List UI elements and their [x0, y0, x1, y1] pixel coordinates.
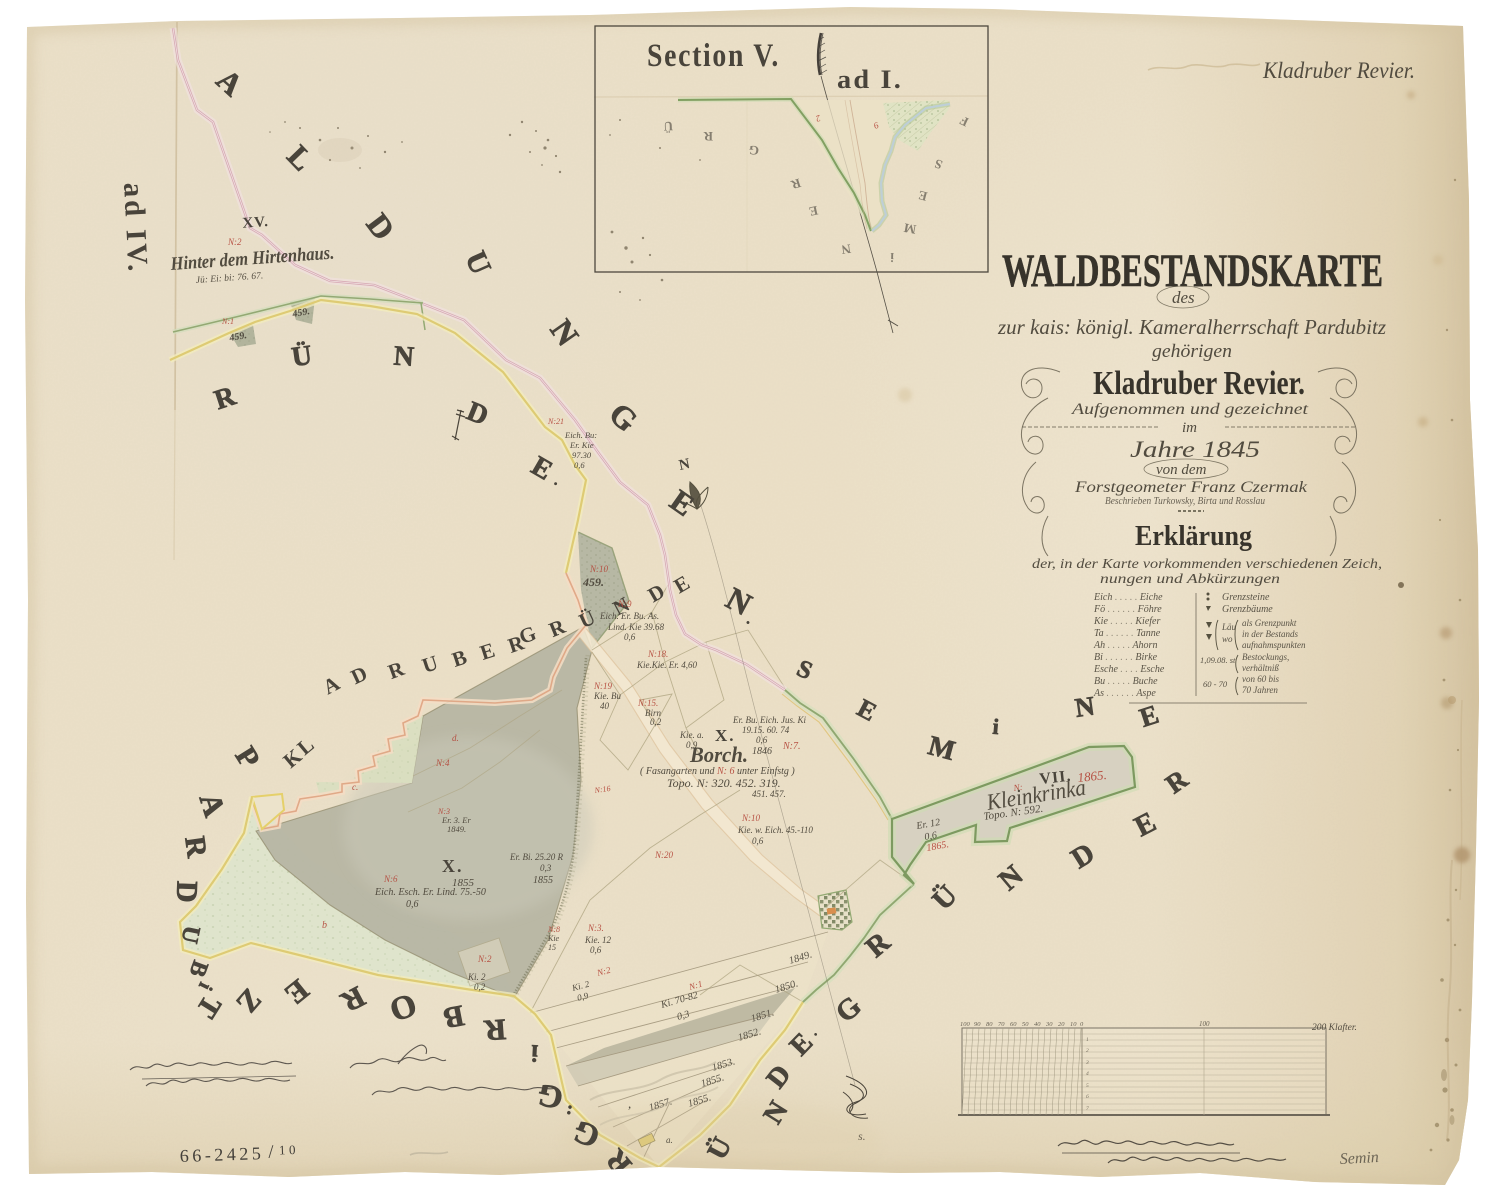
svg-text:4: 4 [1086, 1070, 1089, 1077]
svg-text:50: 50 [1022, 1021, 1029, 1028]
svg-text:b: b [322, 920, 327, 931]
svg-text:D: D [170, 880, 204, 903]
svg-text:R: R [483, 1012, 507, 1046]
svg-text:Kie. Bu: Kie. Bu [593, 691, 621, 701]
svg-text:Eich. Er. Bu. As.: Eich. Er. Bu. As. [599, 611, 659, 621]
svg-text:0,6: 0,6 [590, 945, 602, 955]
svg-text:0,2: 0,2 [474, 982, 486, 992]
svg-text:Kie. 12: Kie. 12 [584, 935, 611, 945]
svg-text:Topo. N: 320. 452. 319.: Topo. N: 320. 452. 319. [667, 776, 781, 790]
svg-text:Er. Kie: Er. Kie [569, 440, 594, 450]
svg-text:im: im [1182, 420, 1197, 436]
svg-text:ad I.: ad I. [837, 65, 903, 94]
svg-text:20: 20 [1058, 1021, 1065, 1028]
svg-text:ad IV.: ad IV. [117, 182, 154, 275]
svg-text:40: 40 [1034, 1021, 1041, 1028]
svg-text:N:20: N:20 [654, 850, 674, 860]
svg-text:30: 30 [1045, 1021, 1053, 1028]
svg-text:XV.: XV. [242, 214, 270, 232]
svg-text:0,3: 0,3 [540, 863, 552, 873]
svg-text:60: 60 [1010, 1021, 1017, 1028]
svg-text:Kie.Kie. Er. 4,60: Kie.Kie. Er. 4,60 [636, 660, 697, 670]
svg-text:Lind. Kie 39.68: Lind. Kie 39.68 [607, 622, 665, 632]
svg-text:nungen und Abkürzungen: nungen und Abkürzungen [1100, 572, 1280, 587]
svg-text:Section V.: Section V. [647, 38, 780, 74]
svg-text:G: G [748, 143, 759, 159]
svg-text:N:2: N:2 [227, 237, 242, 247]
svg-text:N:3.: N:3. [587, 923, 604, 933]
svg-text:wo: wo [1222, 634, 1233, 644]
svg-text:459.: 459. [582, 575, 604, 589]
svg-text:Beschrieben Turkowsky, Birta u: Beschrieben Turkowsky, Birta und Rosslau [1105, 496, 1265, 507]
svg-text:Aufgenommen und gezeichnet: Aufgenommen und gezeichnet [1071, 401, 1309, 418]
svg-text:100: 100 [1199, 1020, 1210, 1028]
svg-text:M: M [903, 220, 918, 237]
svg-text:Bestockungs,: Bestockungs, [1242, 652, 1289, 662]
svg-text:40: 40 [600, 701, 610, 711]
svg-text:1: 1 [1086, 1037, 1089, 1043]
svg-text:1,09.08. st: 1,09.08. st [1200, 655, 1236, 665]
svg-text:19.15. 60. 74: 19.15. 60. 74 [742, 725, 790, 735]
svg-text:2: 2 [1086, 1048, 1089, 1054]
svg-text:Ki. 2: Ki. 2 [467, 972, 486, 982]
svg-text:X.: X. [442, 856, 464, 876]
svg-text:Jahre 1845: Jahre 1845 [1130, 437, 1260, 462]
svg-text:60 - 70: 60 - 70 [1203, 679, 1228, 689]
svg-text:Semin: Semin [1339, 1149, 1379, 1168]
svg-text:Kladruber Revier.: Kladruber Revier. [1262, 58, 1415, 83]
svg-text:in der Bestands: in der Bestands [1242, 629, 1298, 639]
svg-text:70: 70 [998, 1021, 1005, 1028]
svg-text:a.: a. [666, 1135, 673, 1145]
svg-text:gehörigen: gehörigen [1152, 341, 1232, 362]
svg-text:Grenzsteine: Grenzsteine [1222, 592, 1270, 603]
svg-text:aufnahmspunkten: aufnahmspunkten [1242, 640, 1306, 650]
svg-text:N:15.: N:15. [637, 698, 658, 708]
svg-text:des: des [1172, 288, 1195, 307]
svg-text:10: 10 [1070, 1021, 1077, 1028]
svg-text:Erklärung: Erklärung [1135, 520, 1252, 552]
svg-text:451. 457.: 451. 457. [752, 789, 786, 799]
svg-text:N:18.: N:18. [647, 649, 668, 659]
svg-text:0,6: 0,6 [752, 836, 764, 846]
svg-text:As . . . . . . Aspe: As . . . . . . Aspe [1093, 688, 1156, 699]
svg-text:Eich. Bu:: Eich. Bu: [564, 430, 597, 440]
svg-text:Kie . . . . . Kiefer: Kie . . . . . Kiefer [1093, 616, 1160, 627]
svg-text:15: 15 [548, 943, 556, 952]
svg-text:200 Klafter.: 200 Klafter. [1312, 1022, 1357, 1033]
svg-text:N:19: N:19 [593, 681, 613, 691]
svg-text:Kie. a.: Kie. a. [679, 730, 704, 740]
svg-text:Grenzbäume: Grenzbäume [1222, 604, 1273, 615]
svg-text:6: 6 [1086, 1094, 1089, 1100]
svg-text:Er. Bu. Eich. Jus. Ki: Er. Bu. Eich. Jus. Ki [732, 715, 806, 725]
svg-text:N:10: N:10 [589, 564, 609, 574]
svg-text:Kie. w. Eich. 45.-110: Kie. w. Eich. 45.-110 [737, 825, 813, 835]
svg-text:90: 90 [974, 1021, 981, 1028]
svg-text:Fö . . . . . . Föhre: Fö . . . . . . Föhre [1093, 604, 1162, 615]
svg-text:Bi . . . . . . Birke: Bi . . . . . . Birke [1094, 652, 1158, 663]
svg-text:1846: 1846 [752, 746, 772, 757]
svg-text:von 60 bis: von 60 bis [1242, 674, 1279, 684]
svg-text:Forstgeometer Franz Czermak: Forstgeometer Franz Czermak [1074, 479, 1308, 496]
svg-text:N:2: N:2 [477, 954, 492, 964]
svg-text:zur kais: königl. Kameralherrs: zur kais: königl. Kameralherrschaft Pard… [997, 315, 1386, 339]
svg-text:R: R [703, 129, 713, 144]
svg-text:N:7.: N:7. [782, 741, 801, 752]
svg-text:c.: c. [352, 782, 358, 792]
svg-text:N:9: N:9 [617, 599, 632, 609]
svg-text:97.30: 97.30 [572, 450, 592, 460]
svg-text:80: 80 [986, 1021, 993, 1028]
svg-text:0,6: 0,6 [406, 899, 419, 910]
svg-text:N:1: N:1 [221, 317, 234, 326]
svg-text:d.: d. [452, 733, 459, 743]
svg-text:N:6: N:6 [383, 874, 398, 884]
svg-text:N:21: N:21 [547, 417, 564, 426]
svg-text:Er. Bi. 25.20 R: Er. Bi. 25.20 R [509, 852, 564, 862]
svg-text:von dem: von dem [1156, 462, 1207, 478]
svg-text:Ü: Ü [663, 119, 674, 134]
svg-text:N: N [393, 341, 415, 373]
svg-text:100: 100 [960, 1021, 971, 1028]
svg-text:Esche . . . . Esche: Esche . . . . Esche [1093, 664, 1165, 675]
svg-text:Kladruber Revier.: Kladruber Revier. [1093, 365, 1305, 402]
svg-text:0,6: 0,6 [624, 632, 636, 642]
svg-text:Läu: Läu [1221, 622, 1237, 632]
svg-text:verhältniß: verhältniß [1242, 663, 1279, 673]
svg-text:Eich . . . . . Eiche: Eich . . . . . Eiche [1093, 592, 1163, 603]
svg-text:0,2: 0,2 [650, 717, 662, 727]
svg-text:Eich. Esch. Er. Lind. 75.-50: Eich. Esch. Er. Lind. 75.-50 [374, 887, 486, 898]
svg-text:5: 5 [1086, 1083, 1089, 1089]
svg-text:Bu . . . . . Buche: Bu . . . . . Buche [1094, 676, 1158, 687]
svg-text:N:4: N:4 [435, 758, 450, 768]
svg-text:1855: 1855 [533, 875, 553, 886]
svg-text:Ta . . . . . . Tanne: Ta . . . . . . Tanne [1094, 628, 1161, 639]
svg-text:als Grenzpunkt: als Grenzpunkt [1242, 618, 1297, 628]
svg-text:3: 3 [1085, 1060, 1089, 1066]
svg-text:1849.: 1849. [447, 824, 466, 834]
svg-text:der, in der Karte vorkommenden: der, in der Karte vorkommenden verschied… [1032, 557, 1382, 572]
svg-text:,: , [628, 1096, 631, 1111]
svg-text:0,6: 0,6 [756, 735, 768, 745]
svg-text:7: 7 [1086, 1106, 1089, 1112]
svg-text:Ah . . . . . Ahorn: Ah . . . . . Ahorn [1093, 640, 1157, 651]
svg-text:N:8: N:8 [547, 925, 560, 934]
svg-text:Kie: Kie [547, 934, 560, 943]
svg-text:N:10: N:10 [741, 813, 761, 823]
svg-text:0,6: 0,6 [574, 460, 585, 470]
svg-text:70 Jahren: 70 Jahren [1242, 685, 1278, 695]
svg-text:Borch.: Borch. [689, 742, 748, 767]
svg-text:Ü: Ü [290, 340, 314, 374]
svg-text:0,9: 0,9 [686, 740, 698, 750]
